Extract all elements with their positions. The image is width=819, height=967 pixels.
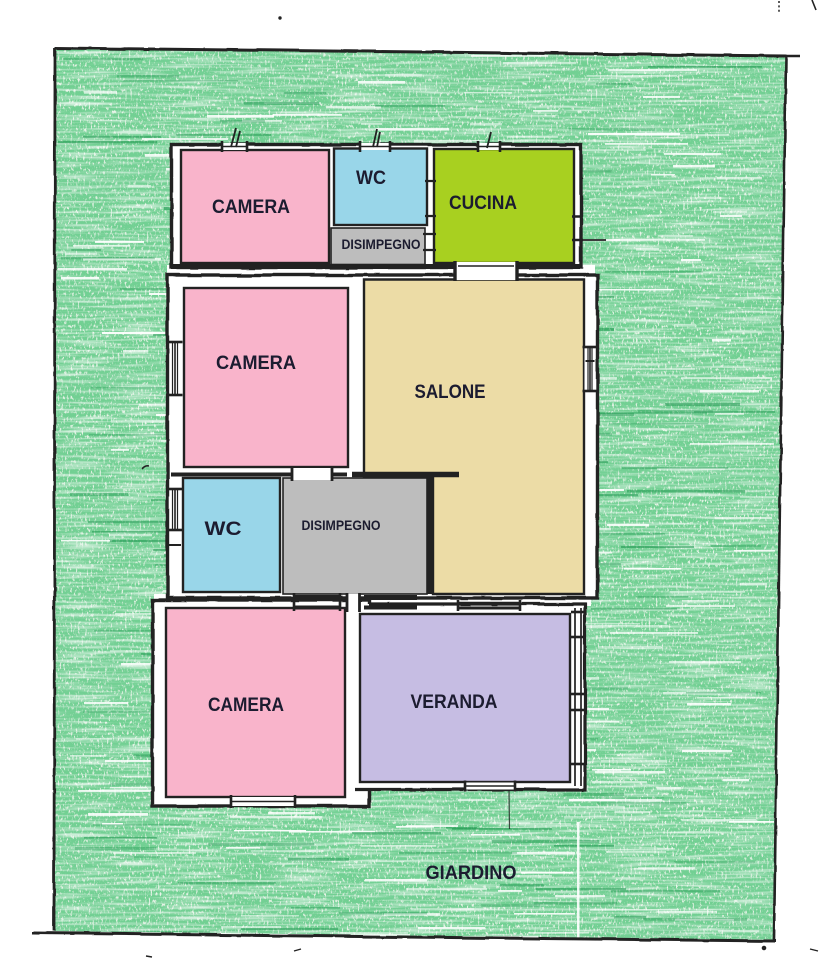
svg-text:WC: WC (205, 518, 242, 540)
svg-text:WC: WC (356, 167, 386, 189)
svg-text:DISIMPEGNO: DISIMPEGNO (342, 236, 421, 252)
svg-text:CAMERA: CAMERA (212, 196, 290, 218)
svg-text:CUCINA: CUCINA (449, 192, 517, 214)
svg-text:CAMERA: CAMERA (216, 352, 296, 374)
svg-text:CAMERA: CAMERA (208, 694, 284, 716)
svg-text:VERANDA: VERANDA (411, 691, 498, 713)
svg-text:GIARDINO: GIARDINO (426, 862, 517, 884)
svg-text:DISIMPEGNO: DISIMPEGNO (302, 517, 381, 533)
svg-text:SALONE: SALONE (415, 381, 486, 403)
